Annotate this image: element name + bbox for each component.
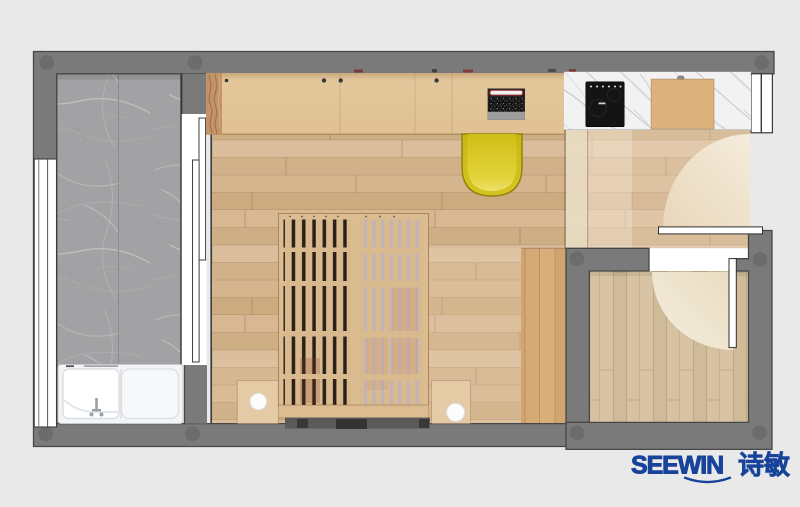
- svg-text:SEEWIN: SEEWIN: [631, 452, 723, 480]
- svg-text:诗敏: 诗敏: [738, 450, 790, 480]
